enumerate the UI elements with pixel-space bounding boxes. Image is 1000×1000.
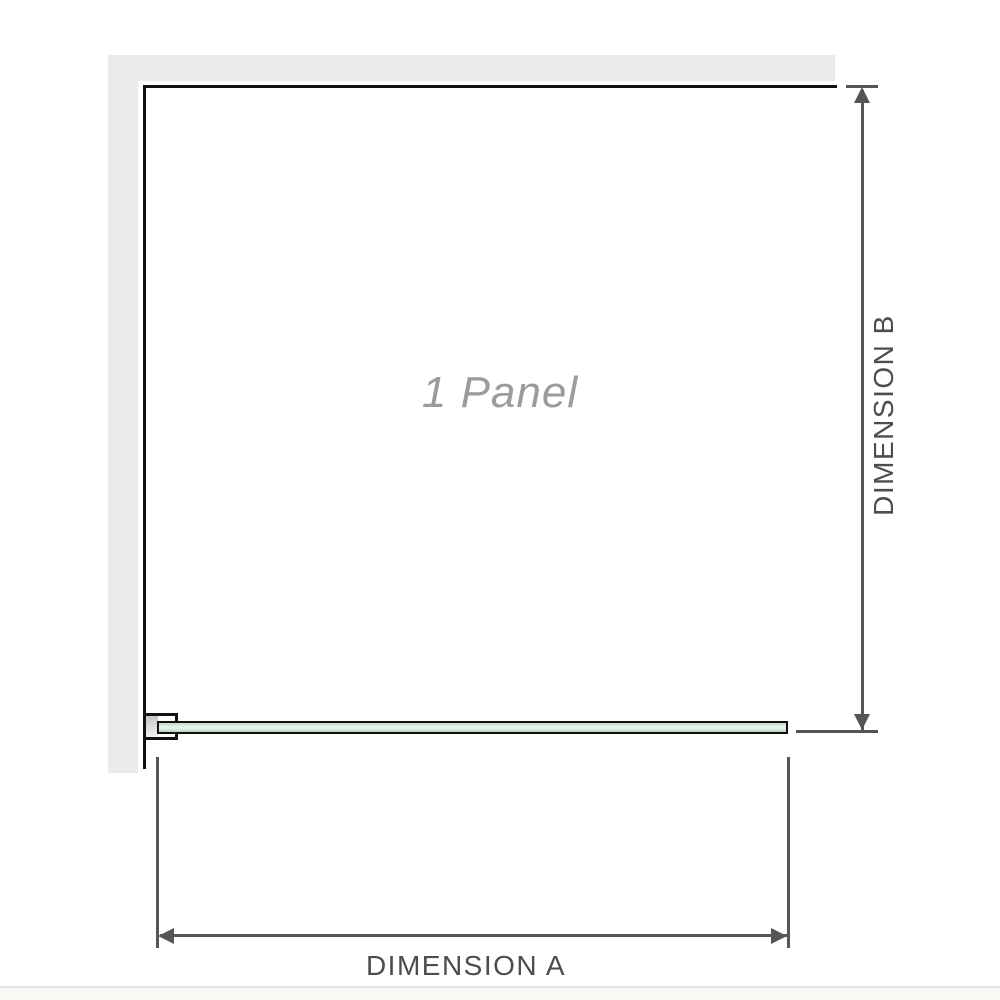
dimension-b-bottom-tick (796, 730, 878, 733)
dimension-b-line (861, 90, 864, 730)
enclosure-top-edge (143, 85, 837, 88)
dimension-a-line (160, 934, 787, 937)
arrow-left-icon (158, 928, 174, 944)
arrow-right-icon (771, 928, 787, 944)
arrow-down-icon (854, 714, 870, 730)
dimension-b-label: DIMENSION B (868, 265, 900, 565)
wall-top (108, 55, 835, 81)
bottom-strip (0, 988, 1000, 1000)
dimension-a-right-tick (787, 757, 790, 948)
wall-side (108, 55, 138, 773)
panel-count-label: 1 Panel (350, 368, 650, 418)
dimension-a-left-tick (156, 757, 159, 948)
arrow-up-icon (854, 87, 870, 103)
enclosure-left-edge (143, 85, 146, 769)
dimension-a-label: DIMENSION A (316, 950, 616, 982)
panel-diagram: DIMENSION B DIMENSION A 1 Panel (0, 0, 1000, 1000)
glass-panel (157, 721, 788, 734)
